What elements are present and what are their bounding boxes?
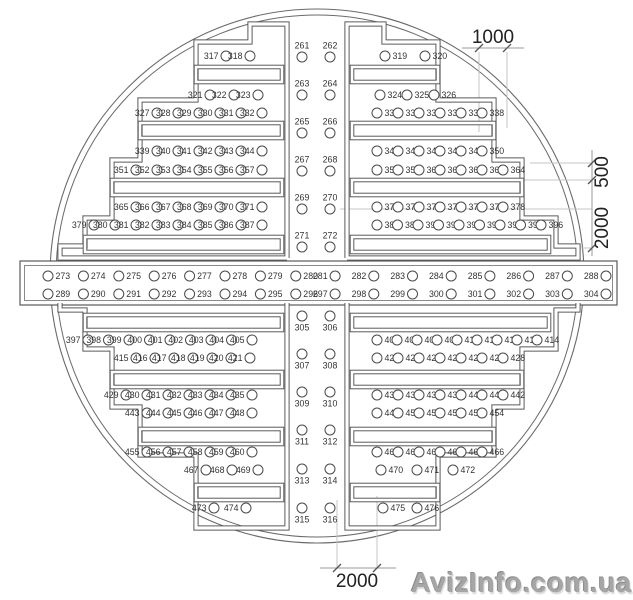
hole-marker: [414, 408, 424, 418]
hole-number: 467: [184, 465, 199, 475]
hole-marker: [297, 166, 307, 176]
hole-number: 332: [240, 108, 255, 118]
hole-number: 274: [91, 271, 106, 281]
hole-number: 316: [323, 515, 338, 525]
hole-number: 343: [219, 146, 234, 156]
hole-number: 278: [233, 271, 248, 281]
hole-number: 399: [107, 335, 122, 345]
hole-number: 460: [230, 447, 245, 457]
hole-marker: [297, 387, 307, 397]
hole-marker: [477, 108, 487, 118]
hole-number: 318: [228, 51, 243, 61]
hole-marker: [498, 390, 508, 400]
hole-number: 319: [393, 51, 408, 61]
hole-marker: [297, 90, 307, 100]
hole-number: 330: [198, 108, 213, 118]
hole-number: 267: [295, 155, 310, 165]
hole-number: 270: [323, 193, 338, 203]
hole-marker: [253, 90, 263, 100]
hole-number: 431: [146, 390, 161, 400]
hole-number: 302: [506, 289, 521, 299]
hole-marker: [475, 220, 485, 230]
hole-marker: [372, 202, 382, 212]
hole-marker: [185, 289, 195, 299]
hole-number: 306: [323, 323, 338, 333]
baffle-slot-9: [140, 429, 282, 444]
hole-marker: [601, 271, 611, 281]
hole-number: 312: [323, 437, 338, 447]
hole-number: 428: [511, 353, 526, 363]
drawing-page: 1000 500 2000 2000 317318321322323327328…: [0, 0, 633, 600]
hole-marker: [372, 335, 382, 345]
hole-marker: [393, 108, 403, 118]
hole-marker: [485, 271, 495, 281]
hole-marker: [297, 242, 307, 252]
hole-marker: [562, 271, 572, 281]
hole-marker: [325, 128, 335, 138]
hole-number: 354: [177, 165, 192, 175]
hole-number: 269: [295, 193, 310, 203]
hole-marker: [414, 108, 424, 118]
hole-number: 265: [295, 117, 310, 127]
hole-marker: [325, 166, 335, 176]
hole-marker: [435, 146, 445, 156]
hole-number: 403: [189, 335, 204, 345]
drawing-canvas: 1000 500 2000 2000 317318321322323327328…: [0, 0, 633, 600]
hole-marker: [524, 289, 534, 299]
hole-number: 298: [352, 289, 367, 299]
hole-marker: [601, 289, 611, 299]
hole-number: 405: [230, 335, 245, 345]
hole-number: 314: [323, 476, 338, 486]
hole-marker: [456, 447, 466, 457]
hole-marker: [245, 51, 255, 61]
hole-number: 275: [126, 271, 141, 281]
hole-number: 272: [323, 231, 338, 241]
dimension-lines: [320, 48, 592, 568]
hole-marker: [456, 108, 466, 118]
hole-marker: [297, 311, 307, 321]
hole-marker: [452, 335, 462, 345]
hole-marker: [435, 108, 445, 118]
hole-number: 313: [295, 476, 310, 486]
hole-number: 292: [162, 289, 177, 299]
hole-marker: [78, 289, 88, 299]
hole-marker: [209, 503, 219, 513]
baffle-slot-7: [352, 237, 549, 252]
hole-marker: [485, 289, 495, 299]
hole-number: 285: [468, 271, 483, 281]
hole-number: 339: [135, 146, 150, 156]
hole-marker: [393, 165, 403, 175]
hole-number: 286: [506, 271, 521, 281]
hole-number: 367: [156, 202, 171, 212]
hole-marker: [372, 408, 382, 418]
hole-marker: [149, 289, 159, 299]
hole-number: 344: [240, 146, 255, 156]
hole-marker: [372, 390, 382, 400]
hole-number: 279: [268, 271, 283, 281]
hole-number: 371: [240, 202, 255, 212]
hole-number: 283: [390, 271, 405, 281]
hole-number: 421: [228, 353, 243, 363]
baffle-slot-4: [352, 67, 438, 82]
hole-number: 369: [198, 202, 213, 212]
hole-number: 398: [86, 335, 101, 345]
hole-number: 317: [204, 51, 219, 61]
hole-marker: [185, 271, 195, 281]
baffle-slot-15: [352, 315, 549, 330]
hole-marker: [456, 146, 466, 156]
hole-number: 263: [295, 79, 310, 89]
hole-number: 370: [219, 202, 234, 212]
hole-number: 396: [549, 220, 564, 230]
hole-number: 295: [268, 289, 283, 299]
hole-marker: [291, 271, 301, 281]
hole-marker: [325, 311, 335, 321]
hole-marker: [408, 289, 418, 299]
hole-marker: [477, 390, 487, 400]
hole-marker: [393, 408, 403, 418]
hole-number: 294: [233, 289, 248, 299]
hole-marker: [492, 335, 502, 345]
hole-marker: [372, 447, 382, 457]
hole-marker: [435, 447, 445, 457]
hole-marker: [325, 204, 335, 214]
hole-number: 382: [135, 220, 150, 230]
hole-number: 341: [177, 146, 192, 156]
baffle-slot-5: [352, 123, 494, 138]
hole-number: 300: [429, 289, 444, 299]
hole-marker: [325, 90, 335, 100]
hole-marker: [477, 447, 487, 457]
hole-number: 432: [167, 390, 182, 400]
hole-number: 368: [177, 202, 192, 212]
hole-number: 383: [156, 220, 171, 230]
hole-marker: [372, 220, 382, 230]
hole-number: 338: [490, 108, 505, 118]
hole-marker: [257, 146, 267, 156]
hole-number: 435: [230, 390, 245, 400]
hole-number: 351: [114, 165, 129, 175]
hole-marker: [297, 503, 307, 513]
hole-number: 289: [56, 289, 71, 299]
hole-number: 414: [545, 335, 560, 345]
hole-number: 429: [104, 390, 119, 400]
hole-number: 342: [198, 146, 213, 156]
hole-marker: [456, 202, 466, 212]
hole-marker: [393, 353, 403, 363]
hole-number: 329: [177, 108, 192, 118]
hole-marker: [512, 335, 522, 345]
hole-marker: [498, 202, 508, 212]
hole-marker: [393, 390, 403, 400]
hole-marker: [420, 51, 430, 61]
hole-number: 326: [442, 90, 457, 100]
hole-marker: [532, 335, 542, 345]
hole-number: 291: [126, 289, 141, 299]
hole-number: 459: [209, 447, 224, 457]
hole-number: 276: [162, 271, 177, 281]
hole-marker: [255, 289, 265, 299]
hole-marker: [297, 425, 307, 435]
hole-marker: [257, 165, 267, 175]
hole-marker: [380, 51, 390, 61]
hole-marker: [378, 503, 388, 513]
hole-marker: [220, 271, 230, 281]
hole-number: 469: [236, 465, 251, 475]
hole-number: 340: [156, 146, 171, 156]
hole-number: 277: [197, 271, 212, 281]
hole-number: 273: [56, 271, 71, 281]
hole-number: 301: [468, 289, 483, 299]
hole-marker: [446, 271, 456, 281]
hole-number: 357: [240, 165, 255, 175]
hole-marker: [435, 202, 445, 212]
hole-number: 305: [295, 323, 310, 333]
hole-number: 325: [415, 90, 430, 100]
hole-number: 281: [313, 271, 328, 281]
hole-marker: [432, 335, 442, 345]
hole-number: 416: [133, 353, 148, 363]
hole-marker: [376, 465, 386, 475]
hole-marker: [448, 465, 458, 475]
hole-number: 446: [188, 408, 203, 418]
hole-number: 420: [209, 353, 224, 363]
dim-label-right-lower: 2000: [592, 207, 613, 249]
hole-number: 468: [210, 465, 225, 475]
baffle-slot-13: [352, 429, 494, 444]
dim-label-bottom: 2000: [336, 571, 378, 592]
hole-marker: [325, 52, 335, 62]
hole-marker: [498, 165, 508, 175]
hole-marker: [253, 465, 263, 475]
hole-marker: [456, 353, 466, 363]
hole-number: 322: [212, 90, 227, 100]
hole-marker: [516, 220, 526, 230]
hole-number: 266: [323, 117, 338, 127]
hole-number: 364: [511, 165, 526, 175]
hole-number: 397: [66, 335, 81, 345]
hole-number: 384: [177, 220, 192, 230]
hole-marker: [297, 204, 307, 214]
hole-number: 311: [295, 437, 309, 447]
hole-marker: [456, 390, 466, 400]
hole-number: 307: [295, 361, 310, 371]
hole-marker: [247, 447, 257, 457]
hole-number: 454: [490, 408, 505, 418]
hole-number: 303: [545, 289, 560, 299]
baffle-slot-14: [352, 372, 522, 387]
hole-marker: [414, 390, 424, 400]
hole-marker: [477, 165, 487, 175]
hole-marker: [454, 220, 464, 230]
hole-marker: [330, 289, 340, 299]
hole-number: 288: [584, 271, 599, 281]
hole-marker: [414, 146, 424, 156]
hole-marker: [114, 289, 124, 299]
hole-marker: [429, 90, 439, 100]
hole-number: 324: [388, 90, 403, 100]
hole-number: 356: [219, 165, 234, 175]
hole-marker: [414, 447, 424, 457]
hole-number: 415: [114, 353, 129, 363]
hole-marker: [245, 353, 255, 363]
hole-number: 310: [323, 399, 338, 409]
hole-number: 418: [171, 353, 186, 363]
hole-number: 315: [295, 515, 310, 525]
hole-marker: [372, 146, 382, 156]
hole-marker: [393, 220, 403, 230]
hole-number: 444: [146, 408, 161, 418]
hole-number: 386: [219, 220, 234, 230]
hole-marker: [412, 465, 422, 475]
hole-number: 350: [490, 146, 505, 156]
hole-marker: [297, 349, 307, 359]
hole-marker: [257, 108, 267, 118]
hole-number: 365: [114, 202, 129, 212]
hole-number: 353: [156, 165, 171, 175]
hole-number: 308: [323, 361, 338, 371]
hole-marker: [291, 289, 301, 299]
hole-marker: [372, 108, 382, 118]
hole-marker: [498, 353, 508, 363]
hole-number: 402: [168, 335, 183, 345]
hole-number: 466: [490, 447, 505, 457]
hole-number: 417: [152, 353, 167, 363]
hole-marker: [412, 335, 422, 345]
hole-marker: [536, 220, 546, 230]
hole-marker: [220, 289, 230, 299]
hole-number: 379: [72, 220, 87, 230]
hole-marker: [325, 349, 335, 359]
hole-marker: [456, 408, 466, 418]
hole-marker: [297, 464, 307, 474]
hole-marker: [372, 165, 382, 175]
hole-marker: [456, 165, 466, 175]
hole-number: 419: [190, 353, 205, 363]
hole-marker: [247, 408, 257, 418]
baffle-slot-0: [196, 67, 282, 82]
hole-marker: [402, 90, 412, 100]
hole-marker: [477, 408, 487, 418]
watermark: AvizInfo.com.ua: [411, 567, 632, 599]
hole-number: 327: [135, 108, 150, 118]
baffle-slot-12: [352, 485, 438, 500]
hole-number: 458: [188, 447, 203, 457]
hole-marker: [297, 128, 307, 138]
hole-number: 304: [584, 289, 599, 299]
baffle-slot-3: [85, 237, 282, 252]
hole-marker: [495, 220, 505, 230]
hole-marker: [435, 408, 445, 418]
hole-marker: [375, 90, 385, 100]
hole-number: 282: [352, 271, 367, 281]
hole-number: 442: [511, 390, 526, 400]
hole-marker: [414, 353, 424, 363]
hole-number: 309: [295, 399, 310, 409]
hole-number: 404: [209, 335, 224, 345]
hole-marker: [325, 242, 335, 252]
hole-number: 400: [127, 335, 142, 345]
hole-number: 284: [429, 271, 444, 281]
hole-number: 290: [91, 289, 106, 299]
hole-number: 297: [313, 289, 328, 299]
hole-number: 387: [240, 220, 255, 230]
hole-marker: [78, 271, 88, 281]
hole-number: 262: [323, 41, 338, 51]
hole-number: 472: [461, 465, 476, 475]
hole-marker: [477, 353, 487, 363]
hole-marker: [247, 390, 257, 400]
hole-marker: [297, 52, 307, 62]
hole-number: 456: [146, 447, 161, 457]
hole-marker: [372, 353, 382, 363]
hole-number: 293: [197, 289, 212, 299]
hole-number: 320: [433, 51, 448, 61]
hole-marker: [434, 220, 444, 230]
hole-number: 287: [545, 271, 560, 281]
hole-marker: [247, 335, 257, 345]
hole-number: 457: [167, 447, 182, 457]
hole-number: 473: [192, 503, 207, 513]
hole-number: 268: [323, 155, 338, 165]
hole-number: 355: [198, 165, 213, 175]
hole-marker: [408, 271, 418, 281]
hole-number: 366: [135, 202, 150, 212]
hole-marker: [393, 447, 403, 457]
hole-marker: [257, 220, 267, 230]
hole-marker: [477, 146, 487, 156]
hole-number: 328: [156, 108, 171, 118]
hole-number: 264: [323, 79, 338, 89]
hole-number: 430: [125, 390, 140, 400]
hole-number: 476: [425, 503, 440, 513]
hole-marker: [325, 464, 335, 474]
hole-marker: [392, 335, 402, 345]
hole-marker: [325, 425, 335, 435]
hole-number: 261: [295, 41, 310, 51]
hole-marker: [414, 202, 424, 212]
hole-marker: [149, 271, 159, 281]
hole-number: 321: [188, 90, 203, 100]
baffle-slot-2: [112, 180, 282, 195]
hole-marker: [414, 165, 424, 175]
hole-marker: [472, 335, 482, 345]
hole-marker: [393, 146, 403, 156]
hole-number: 401: [148, 335, 163, 345]
hole-marker: [435, 390, 445, 400]
hole-marker: [477, 202, 487, 212]
baffle-slot-1: [140, 123, 282, 138]
hole-number: 475: [391, 503, 406, 513]
hole-number: 443: [125, 408, 140, 418]
hole-number: 299: [390, 289, 405, 299]
hole-marker: [369, 271, 379, 281]
hole-marker: [562, 289, 572, 299]
hole-marker: [524, 271, 534, 281]
hole-number: 447: [209, 408, 224, 418]
hole-marker: [325, 503, 335, 513]
hole-number: 470: [389, 465, 404, 475]
baffle-slot-8: [196, 485, 282, 500]
hole-number: 455: [125, 447, 140, 457]
hole-marker: [114, 271, 124, 281]
hole-marker: [257, 202, 267, 212]
hole-number: 385: [198, 220, 213, 230]
baffle-slot-6: [352, 180, 522, 195]
hole-number: 445: [167, 408, 182, 418]
